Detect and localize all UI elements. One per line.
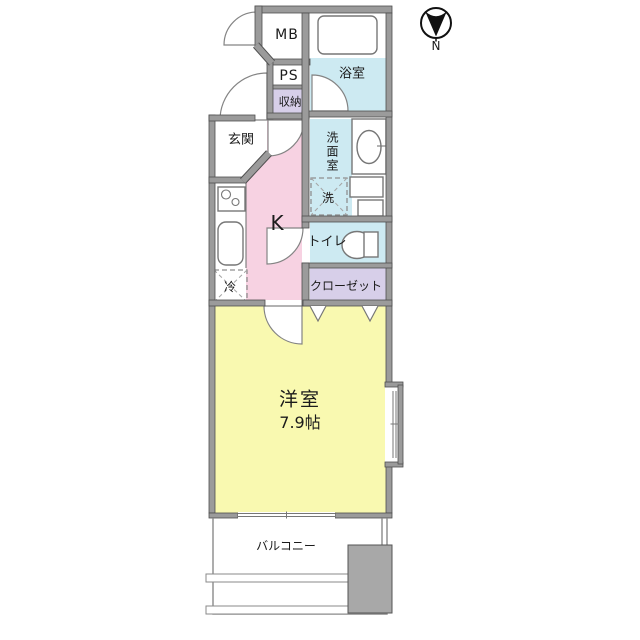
- stove: [218, 187, 245, 211]
- compass: [421, 8, 451, 42]
- meter-box-label: MB: [275, 28, 299, 42]
- floor-plan: MB 浴室 PS 収納 玄関 洗面室 洗 K トイレ 冷 クローゼット 洋室 7…: [0, 0, 640, 640]
- door-arc-meter-box: [224, 12, 257, 45]
- kitchen-label: K: [270, 213, 283, 233]
- wall-segment: [255, 6, 262, 47]
- wall-segment: [302, 13, 309, 228]
- door-arc-entrance: [220, 73, 267, 120]
- bathtub: [318, 16, 377, 54]
- refrigerator-label: 冷: [224, 281, 236, 293]
- balcony-partition-bar: [206, 606, 348, 614]
- wall-segment: [267, 62, 273, 119]
- western-room-label: 洋室: [279, 391, 321, 410]
- wall-segment: [255, 6, 392, 13]
- wash-basin: [357, 131, 381, 164]
- washroom-label: 洗面室: [326, 131, 338, 173]
- washroom-counter-upper: [350, 177, 383, 197]
- pipe-space-label: PS: [279, 69, 298, 83]
- entrance-label: 玄関: [228, 134, 254, 147]
- wall-segment: [209, 115, 255, 121]
- balcony-partition-bar: [206, 574, 348, 582]
- wall-segment: [209, 513, 238, 518]
- wall-segment: [398, 385, 403, 464]
- balcony-pillar-block: [348, 545, 392, 613]
- wall-segment: [335, 513, 392, 518]
- wall-segment: [273, 85, 304, 89]
- wall-segment: [302, 263, 309, 306]
- closet-label: クローゼット: [310, 280, 382, 292]
- wall-segment: [209, 300, 265, 306]
- wall-segment: [303, 300, 392, 306]
- western-room-size: 7.9帖: [279, 415, 320, 431]
- wall-segment: [209, 115, 215, 513]
- washing-machine-label: 洗: [322, 192, 334, 204]
- floor-plan-drawing: [0, 0, 640, 640]
- kitchen-sink: [218, 222, 243, 265]
- storage-label: 収納: [279, 96, 302, 108]
- wall-segment: [302, 216, 392, 222]
- wall-segment: [302, 263, 392, 268]
- balcony-label: バルコニー: [256, 540, 316, 552]
- north-label: N: [432, 40, 441, 52]
- wall-diagonal: [256, 45, 272, 63]
- wall-segment: [302, 111, 392, 117]
- washroom-counter-lower: [358, 200, 383, 216]
- toilet-tank: [364, 232, 378, 257]
- bathroom-label: 浴室: [339, 68, 365, 81]
- toilet-label: トイレ: [307, 236, 346, 249]
